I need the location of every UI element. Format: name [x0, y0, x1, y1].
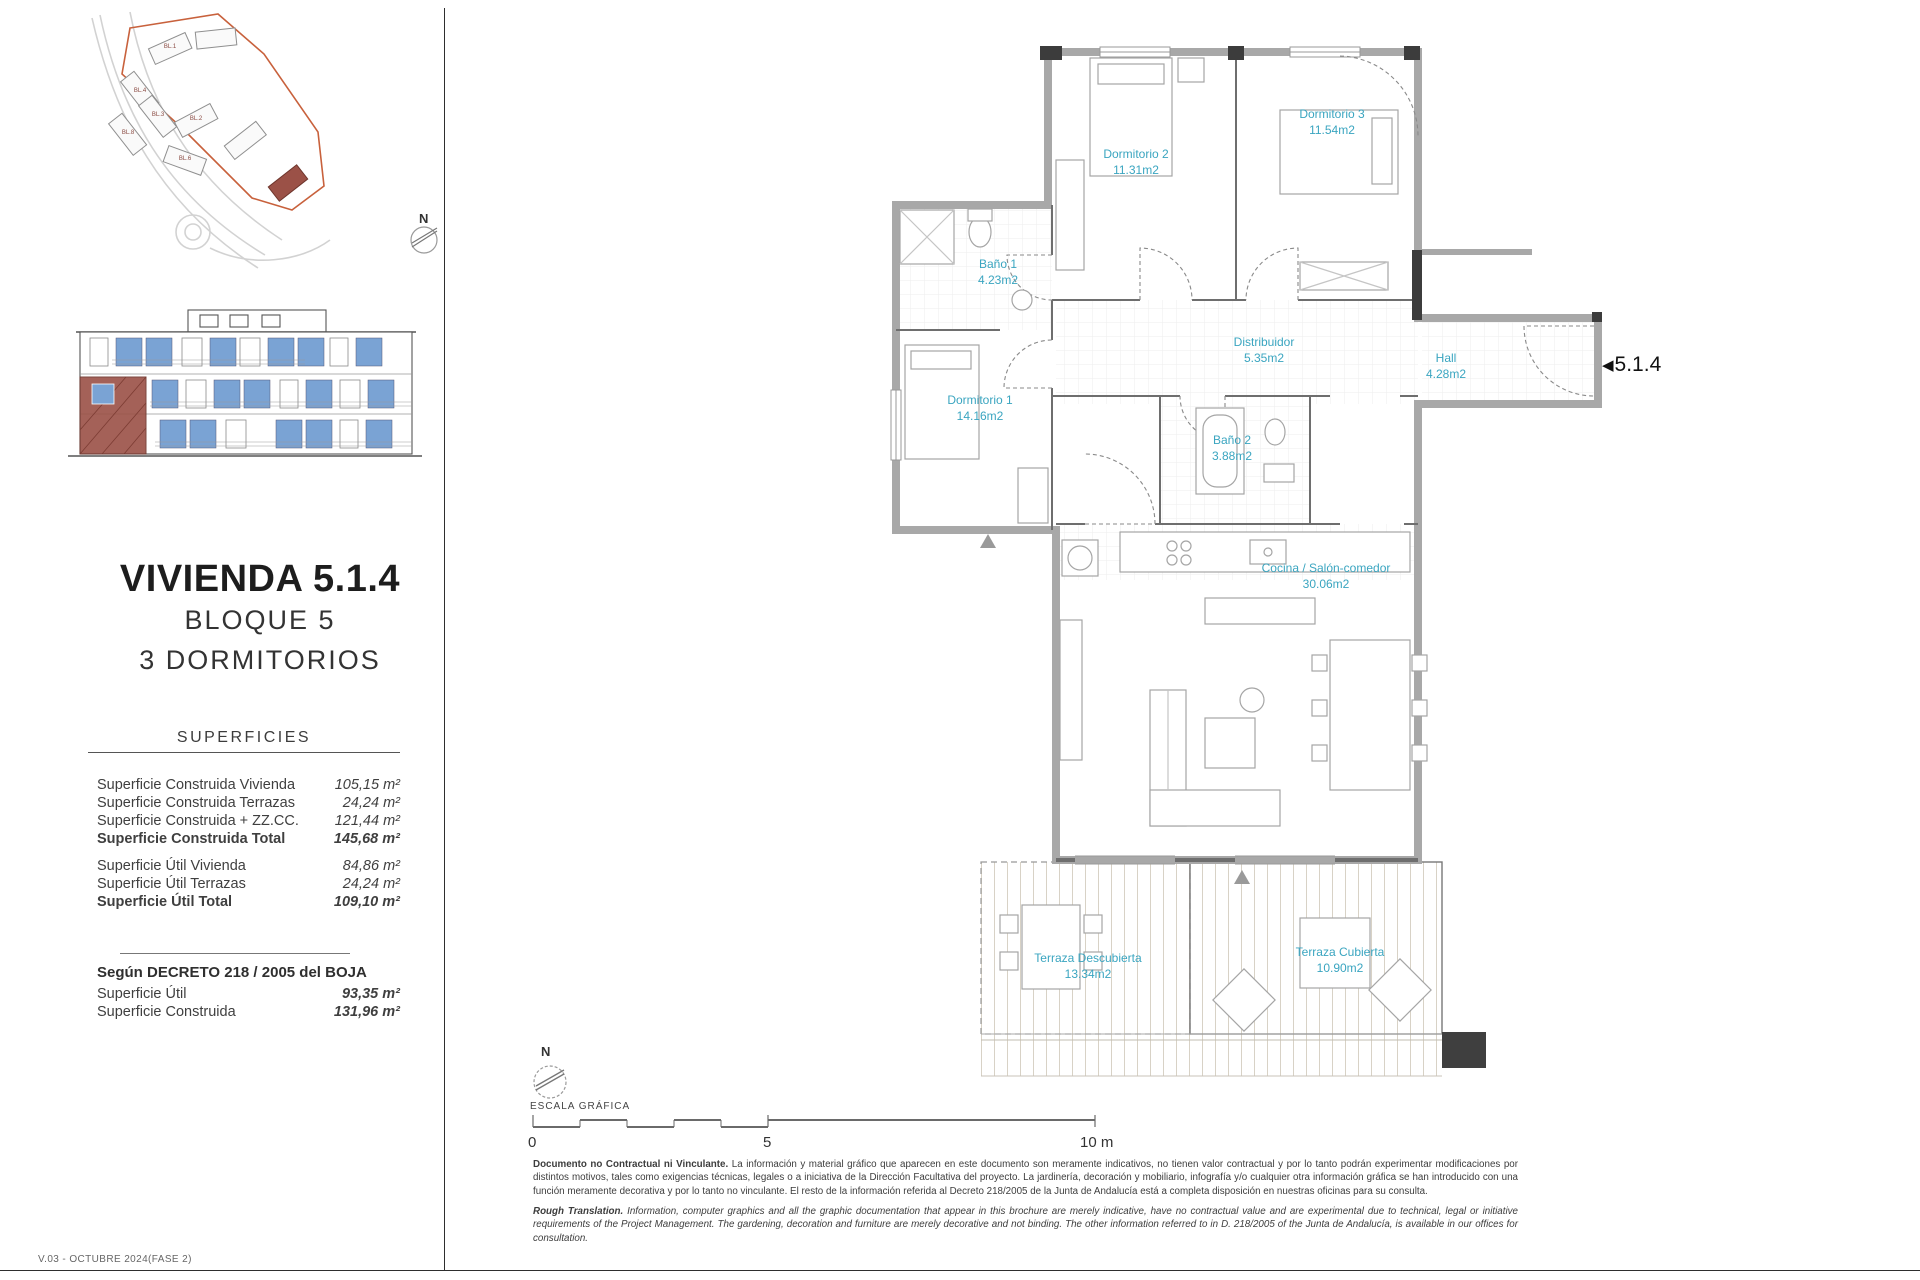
scale-bar [525, 1112, 1115, 1132]
room-label-bano2: Baño 2 3.88m2 [1212, 432, 1252, 464]
superficies-rule [88, 752, 400, 753]
site-block-label: BL.3 [152, 112, 164, 118]
room-label-terraza-cubierta: Terraza Cubierta 10.90m2 [1296, 944, 1385, 976]
unit-marker-label: 5.1.4 [1615, 353, 1662, 377]
table-row: Superficie Construida Terrazas 24,24 m² [97, 795, 400, 812]
table-row: Superficie Útil Terrazas 24,24 m² [97, 876, 400, 893]
table-row-total: Superficie Construida Total 145,68 m² [97, 831, 400, 848]
table-row: Superficie Útil 93,35 m² [97, 986, 400, 1003]
room-label-dormitorio2: Dormitorio 2 11.31m2 [1103, 146, 1168, 178]
decreto-heading: Según DECRETO 218 / 2005 del BOJA [97, 964, 367, 981]
table-row: Superficie Útil Vivienda 84,86 m² [97, 858, 400, 875]
table-row-total: Superficie Útil Total 109,10 m² [97, 894, 400, 911]
scale-north-label: N [541, 1044, 550, 1059]
disclaimer-es-title: Documento no Contractual ni Vinculante. [533, 1159, 728, 1170]
disclaimer-es: Documento no Contractual ni Vinculante. … [533, 1158, 1518, 1198]
page-title: VIVIENDA 5.1.4 [70, 558, 450, 600]
brochure-page: BL.1 BL.2 BL.3 BL.4 BL.6 BL.8 N [0, 0, 1920, 1280]
scale-tick-0: 0 [528, 1134, 536, 1151]
title-block: VIVIENDA 5.1.4 BLOQUE 5 3 DORMITORIOS [70, 558, 450, 680]
scale-compass-icon [525, 1060, 585, 1105]
table-row: Superficie Construida 131,96 m² [97, 1004, 400, 1021]
entry-triangle [980, 534, 996, 548]
site-block-label: BL.8 [122, 130, 134, 136]
floor-plan-drawing [860, 20, 1650, 1100]
site-block-label: BL.2 [190, 116, 202, 122]
site-compass-icon [411, 227, 437, 253]
decreto-separator [120, 953, 350, 954]
version-note: V.03 - OCTUBRE 2024(FASE 2) [38, 1254, 192, 1265]
scale-tick-10: 10 m [1080, 1134, 1113, 1151]
site-blocks [109, 28, 267, 175]
site-block-label: BL.1 [164, 44, 176, 50]
table-row: Superficie Construida Vivienda 105,15 m² [97, 777, 400, 794]
superficies-heading: SUPERFICIES [88, 729, 400, 747]
site-block-label: BL.6 [179, 156, 191, 162]
room-label-distribuidor: Distribuidor 5.35m2 [1234, 334, 1295, 366]
disclaimer-en-title: Rough Translation. [533, 1206, 623, 1217]
unit-marker: ◀ 5.1.4 [1602, 353, 1661, 377]
site-block-highlight [268, 165, 307, 201]
room-label-cocina: Cocina / Salón-comedor 30.06m2 [1262, 560, 1391, 592]
subtitle-block: BLOQUE 5 [70, 600, 450, 640]
room-label-bano1: Baño 1 4.23m2 [978, 256, 1018, 288]
bottom-rule [0, 1270, 1920, 1271]
table-row: Superficie Construida + ZZ.CC. 121,44 m² [97, 813, 400, 830]
building-elevation-drawing [55, 295, 430, 470]
subtitle-rooms: 3 DORMITORIOS [70, 640, 450, 680]
site-north-label: N [419, 211, 428, 226]
scale-tick-5: 5 [763, 1134, 771, 1151]
site-block-label: BL.4 [134, 88, 146, 94]
room-label-dormitorio3: Dormitorio 3 11.54m2 [1299, 106, 1364, 138]
site-plan-drawing [70, 5, 450, 285]
scale-label: ESCALA GRÁFICA [530, 1101, 630, 1112]
left-arrow-icon: ◀ [1602, 356, 1614, 374]
elevation-unit-highlight [80, 377, 146, 454]
room-label-dormitorio1: Dormitorio 1 14.16m2 [947, 392, 1012, 424]
room-label-terraza-descubierta: Terraza Descubierta 13.34m2 [1034, 950, 1141, 982]
room-label-hall: Hall 4.28m2 [1426, 350, 1466, 382]
disclaimer-en: Rough Translation. Information, computer… [533, 1205, 1518, 1245]
